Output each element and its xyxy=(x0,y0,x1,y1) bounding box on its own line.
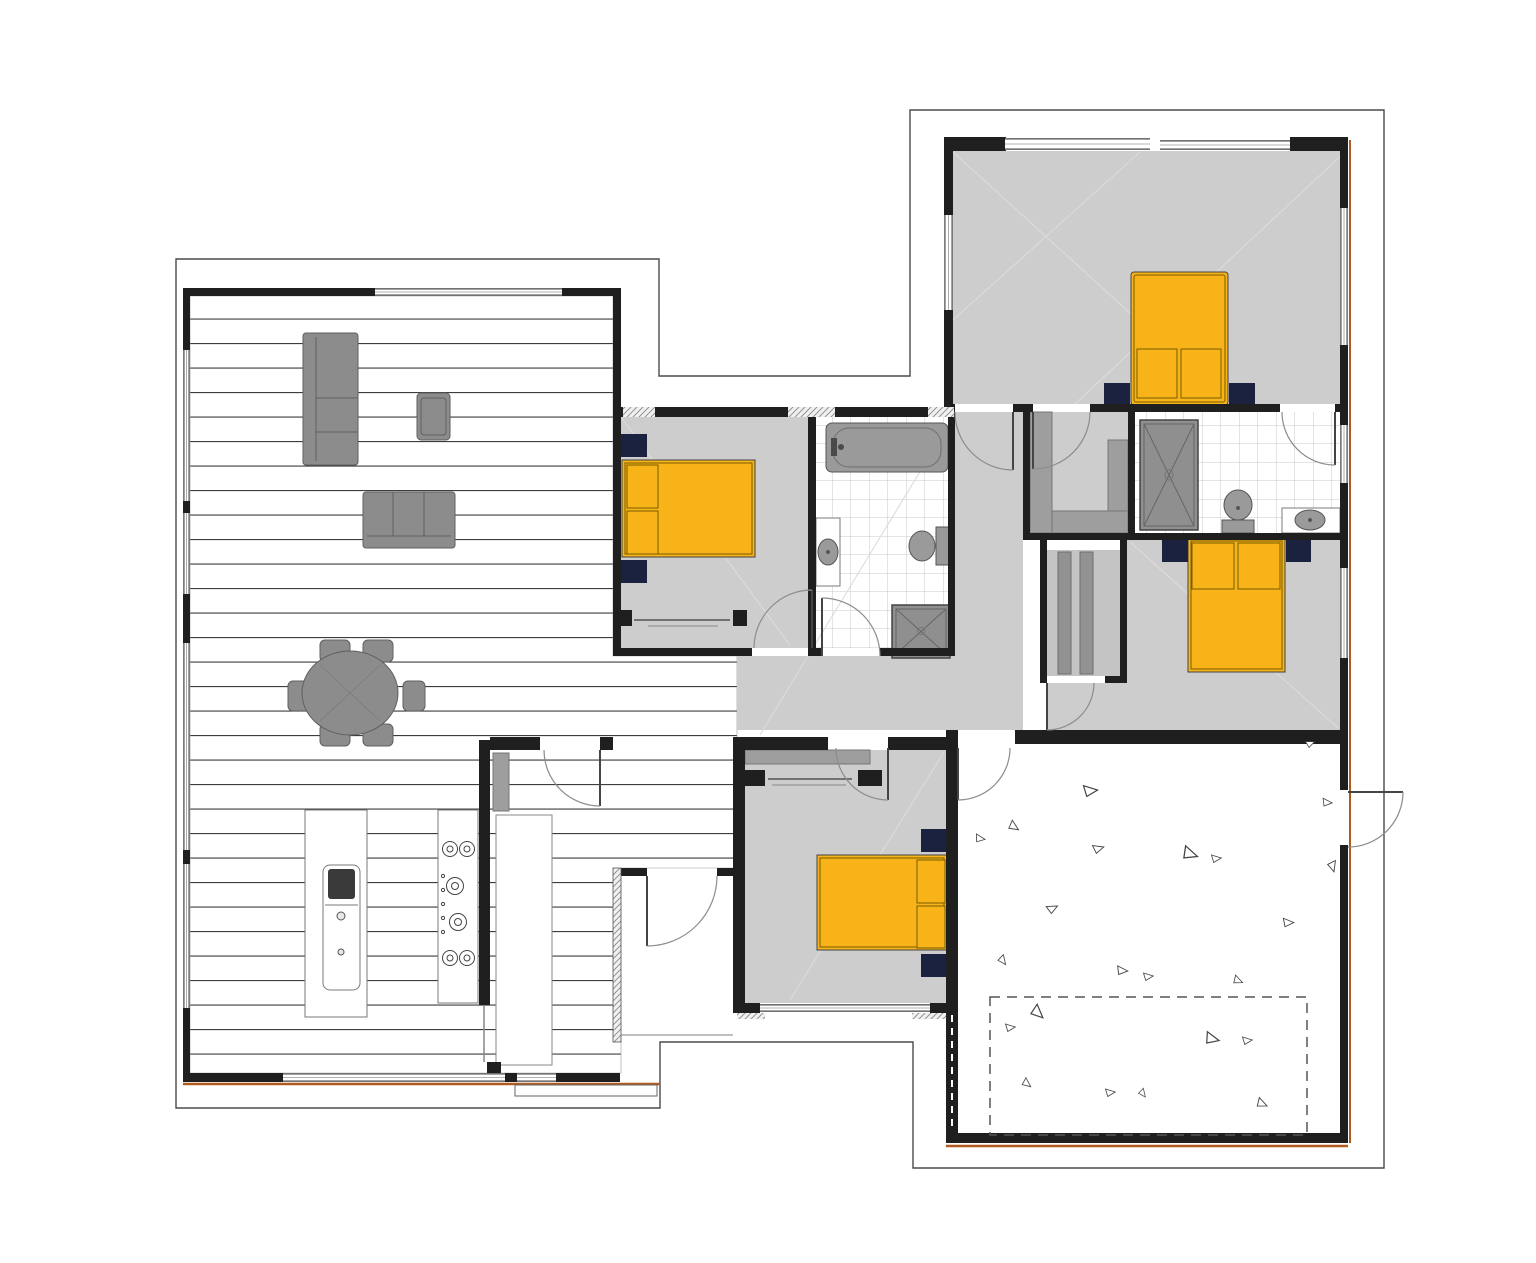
window xyxy=(1160,140,1290,150)
nightstand xyxy=(1229,383,1255,407)
tub-faucet xyxy=(831,438,837,456)
nightstand xyxy=(620,560,647,583)
dining-chair xyxy=(403,681,425,711)
window xyxy=(183,864,190,1008)
concrete-triangle-marker xyxy=(1232,975,1244,986)
nightstand xyxy=(620,434,647,457)
pillow xyxy=(1181,349,1221,398)
bathtub xyxy=(826,423,948,472)
bedroom-3-bed xyxy=(817,855,947,950)
window xyxy=(1340,568,1348,658)
concrete-triangle-marker xyxy=(1144,973,1154,981)
window xyxy=(283,1073,505,1082)
concrete-triangle-marker xyxy=(1204,1032,1221,1047)
window xyxy=(183,350,190,501)
laundry-shelf xyxy=(493,753,509,811)
window-sill-hatch xyxy=(912,1013,946,1019)
cooktop-bench xyxy=(438,810,478,1003)
concrete-triangle-marker xyxy=(1327,860,1337,872)
concrete-triangle-marker xyxy=(1322,798,1333,807)
window xyxy=(760,1004,930,1012)
concrete-triangle-marker xyxy=(1084,786,1098,797)
concrete-triangle-marker xyxy=(1243,1037,1253,1045)
sink-faucet xyxy=(328,869,355,899)
bedroom-1-bed xyxy=(622,460,755,557)
window xyxy=(944,215,953,310)
concrete-triangle-marker xyxy=(1046,903,1059,915)
nightstand xyxy=(1162,538,1188,562)
pillow xyxy=(917,906,945,948)
ensuite-vanity xyxy=(1282,508,1340,533)
nightstand xyxy=(921,829,948,852)
nightstand xyxy=(1286,538,1311,562)
door-gap xyxy=(1339,790,1349,845)
master-bed xyxy=(1131,272,1228,405)
window-sill-hatch xyxy=(788,407,835,417)
window xyxy=(1340,425,1348,483)
pillow xyxy=(1238,543,1280,589)
window-sill-hatch xyxy=(737,1013,765,1019)
toilet-ensuite xyxy=(1222,490,1254,533)
sofa-two-seater xyxy=(363,492,455,548)
window xyxy=(1340,208,1348,345)
concrete-triangle-marker xyxy=(974,834,985,844)
concrete-triangle-marker xyxy=(1212,855,1222,863)
garage-dashed-zone xyxy=(990,997,1307,1135)
laundry-bench xyxy=(496,815,552,1065)
exterior-step xyxy=(515,1085,657,1096)
bathroom-vanity xyxy=(816,518,840,586)
concrete-triangle-marker xyxy=(1106,1089,1116,1097)
bedroom-2-bed xyxy=(1188,538,1285,672)
concrete-triangle-marker xyxy=(997,955,1008,967)
window xyxy=(1005,138,1150,150)
shower-ensuite xyxy=(1140,420,1198,530)
concrete-triangle-marker xyxy=(1116,966,1128,976)
concrete-triangle-marker xyxy=(1138,1088,1148,1099)
floor-plan-canvas xyxy=(0,0,1536,1263)
concrete-floor-markers xyxy=(974,739,1337,1110)
garage-internal-door xyxy=(958,748,1010,800)
porch-wall-hatch xyxy=(613,868,621,1042)
window xyxy=(183,513,190,594)
pillow xyxy=(627,465,658,508)
concrete-triangle-marker xyxy=(1092,844,1104,854)
pillow xyxy=(1137,349,1177,398)
pillow xyxy=(1192,543,1234,589)
concrete-triangle-marker xyxy=(1021,1078,1033,1090)
nightstand xyxy=(921,954,948,977)
concrete-triangle-marker xyxy=(1007,820,1021,833)
entry-door xyxy=(647,876,717,946)
concrete-triangle-marker xyxy=(1029,1004,1046,1022)
concrete-triangle-marker xyxy=(1006,1024,1016,1032)
concrete-triangle-marker xyxy=(1255,1098,1269,1111)
concrete-triangle-marker xyxy=(1181,846,1200,863)
window xyxy=(183,643,190,850)
floor-plan-drawing xyxy=(0,0,1536,1263)
concrete-triangle-marker xyxy=(1283,918,1295,927)
window xyxy=(375,288,562,296)
window-sill-hatch xyxy=(623,407,655,417)
pillow xyxy=(917,860,945,903)
garage-side-door xyxy=(1348,792,1403,847)
sofa-three-seater xyxy=(303,333,358,465)
armchair xyxy=(417,393,450,440)
nightstand xyxy=(1104,383,1130,407)
pillow xyxy=(627,511,658,554)
window-sill-hatch xyxy=(928,407,954,417)
kitchen-island xyxy=(305,810,367,1017)
window xyxy=(517,1073,556,1082)
